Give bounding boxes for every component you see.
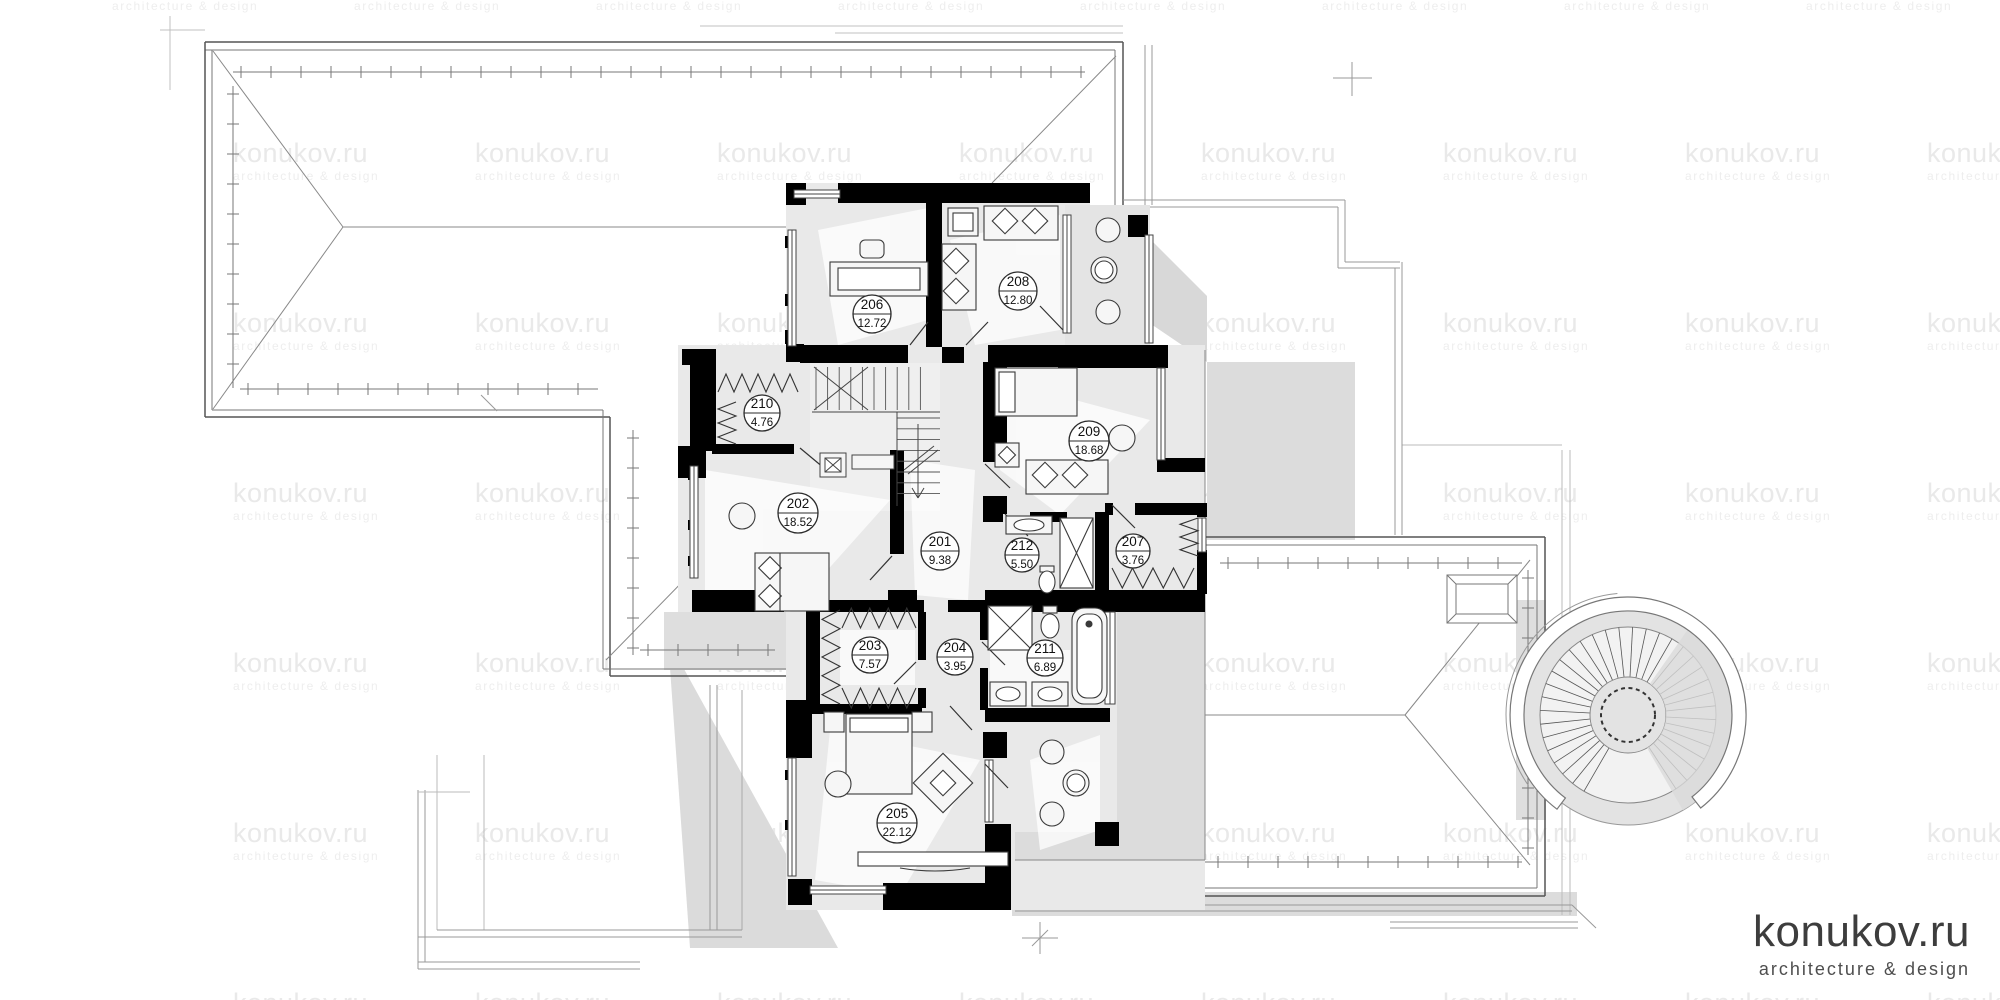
svg-text:211: 211: [1034, 641, 1056, 656]
room-label-202: 20218.52: [778, 493, 818, 533]
room-label-210: 2104.76: [744, 395, 780, 431]
svg-text:22.12: 22.12: [883, 827, 912, 839]
svg-text:3.95: 3.95: [944, 661, 966, 673]
svg-text:7.57: 7.57: [859, 659, 881, 671]
svg-text:210: 210: [751, 396, 774, 411]
svg-text:18.52: 18.52: [784, 517, 813, 529]
room-label-209: 20918.68: [1069, 421, 1109, 461]
svg-text:212: 212: [1011, 538, 1034, 553]
svg-text:207: 207: [1122, 534, 1145, 549]
svg-text:4.76: 4.76: [751, 417, 773, 429]
room-label-207: 2073.76: [1116, 534, 1150, 568]
svg-text:6.89: 6.89: [1034, 662, 1056, 674]
room-label-205: 20522.12: [877, 803, 917, 843]
plan-drawing: 2019.38 20218.52 2037.57 2043.95 20522.1…: [0, 0, 2000, 1000]
svg-text:208: 208: [1007, 274, 1030, 289]
brand-logo: konukov.ru architecture & design: [1753, 910, 1970, 978]
svg-text:205: 205: [886, 806, 909, 821]
svg-text:201: 201: [929, 534, 952, 549]
floor-plan-sheet: konukov.ruarchitecture & designkonukov.r…: [0, 0, 2000, 1000]
svg-text:5.50: 5.50: [1011, 559, 1033, 571]
svg-text:3.76: 3.76: [1122, 555, 1144, 567]
svg-text:12.80: 12.80: [1004, 295, 1033, 307]
svg-text:9.38: 9.38: [929, 555, 951, 567]
svg-text:206: 206: [861, 297, 884, 312]
room-label-201: 2019.38: [921, 532, 959, 570]
svg-text:203: 203: [859, 638, 882, 653]
brand-logo-tagline: architecture & design: [1753, 960, 1970, 978]
room-label-208: 20812.80: [999, 272, 1037, 310]
room-label-206: 20612.72: [853, 295, 891, 333]
room-label-203: 2037.57: [852, 637, 888, 673]
svg-text:202: 202: [787, 496, 810, 511]
svg-text:204: 204: [944, 640, 967, 655]
room-label-204: 2043.95: [937, 639, 973, 675]
brand-logo-text: konukov.ru: [1753, 910, 1970, 954]
svg-text:18.68: 18.68: [1075, 445, 1104, 457]
room-label-211: 2116.89: [1027, 640, 1063, 676]
stair-tower: [1506, 594, 1746, 826]
svg-text:209: 209: [1078, 424, 1101, 439]
svg-text:12.72: 12.72: [858, 318, 887, 330]
skylight: [1447, 575, 1517, 623]
room-label-212: 2125.50: [1005, 538, 1039, 572]
